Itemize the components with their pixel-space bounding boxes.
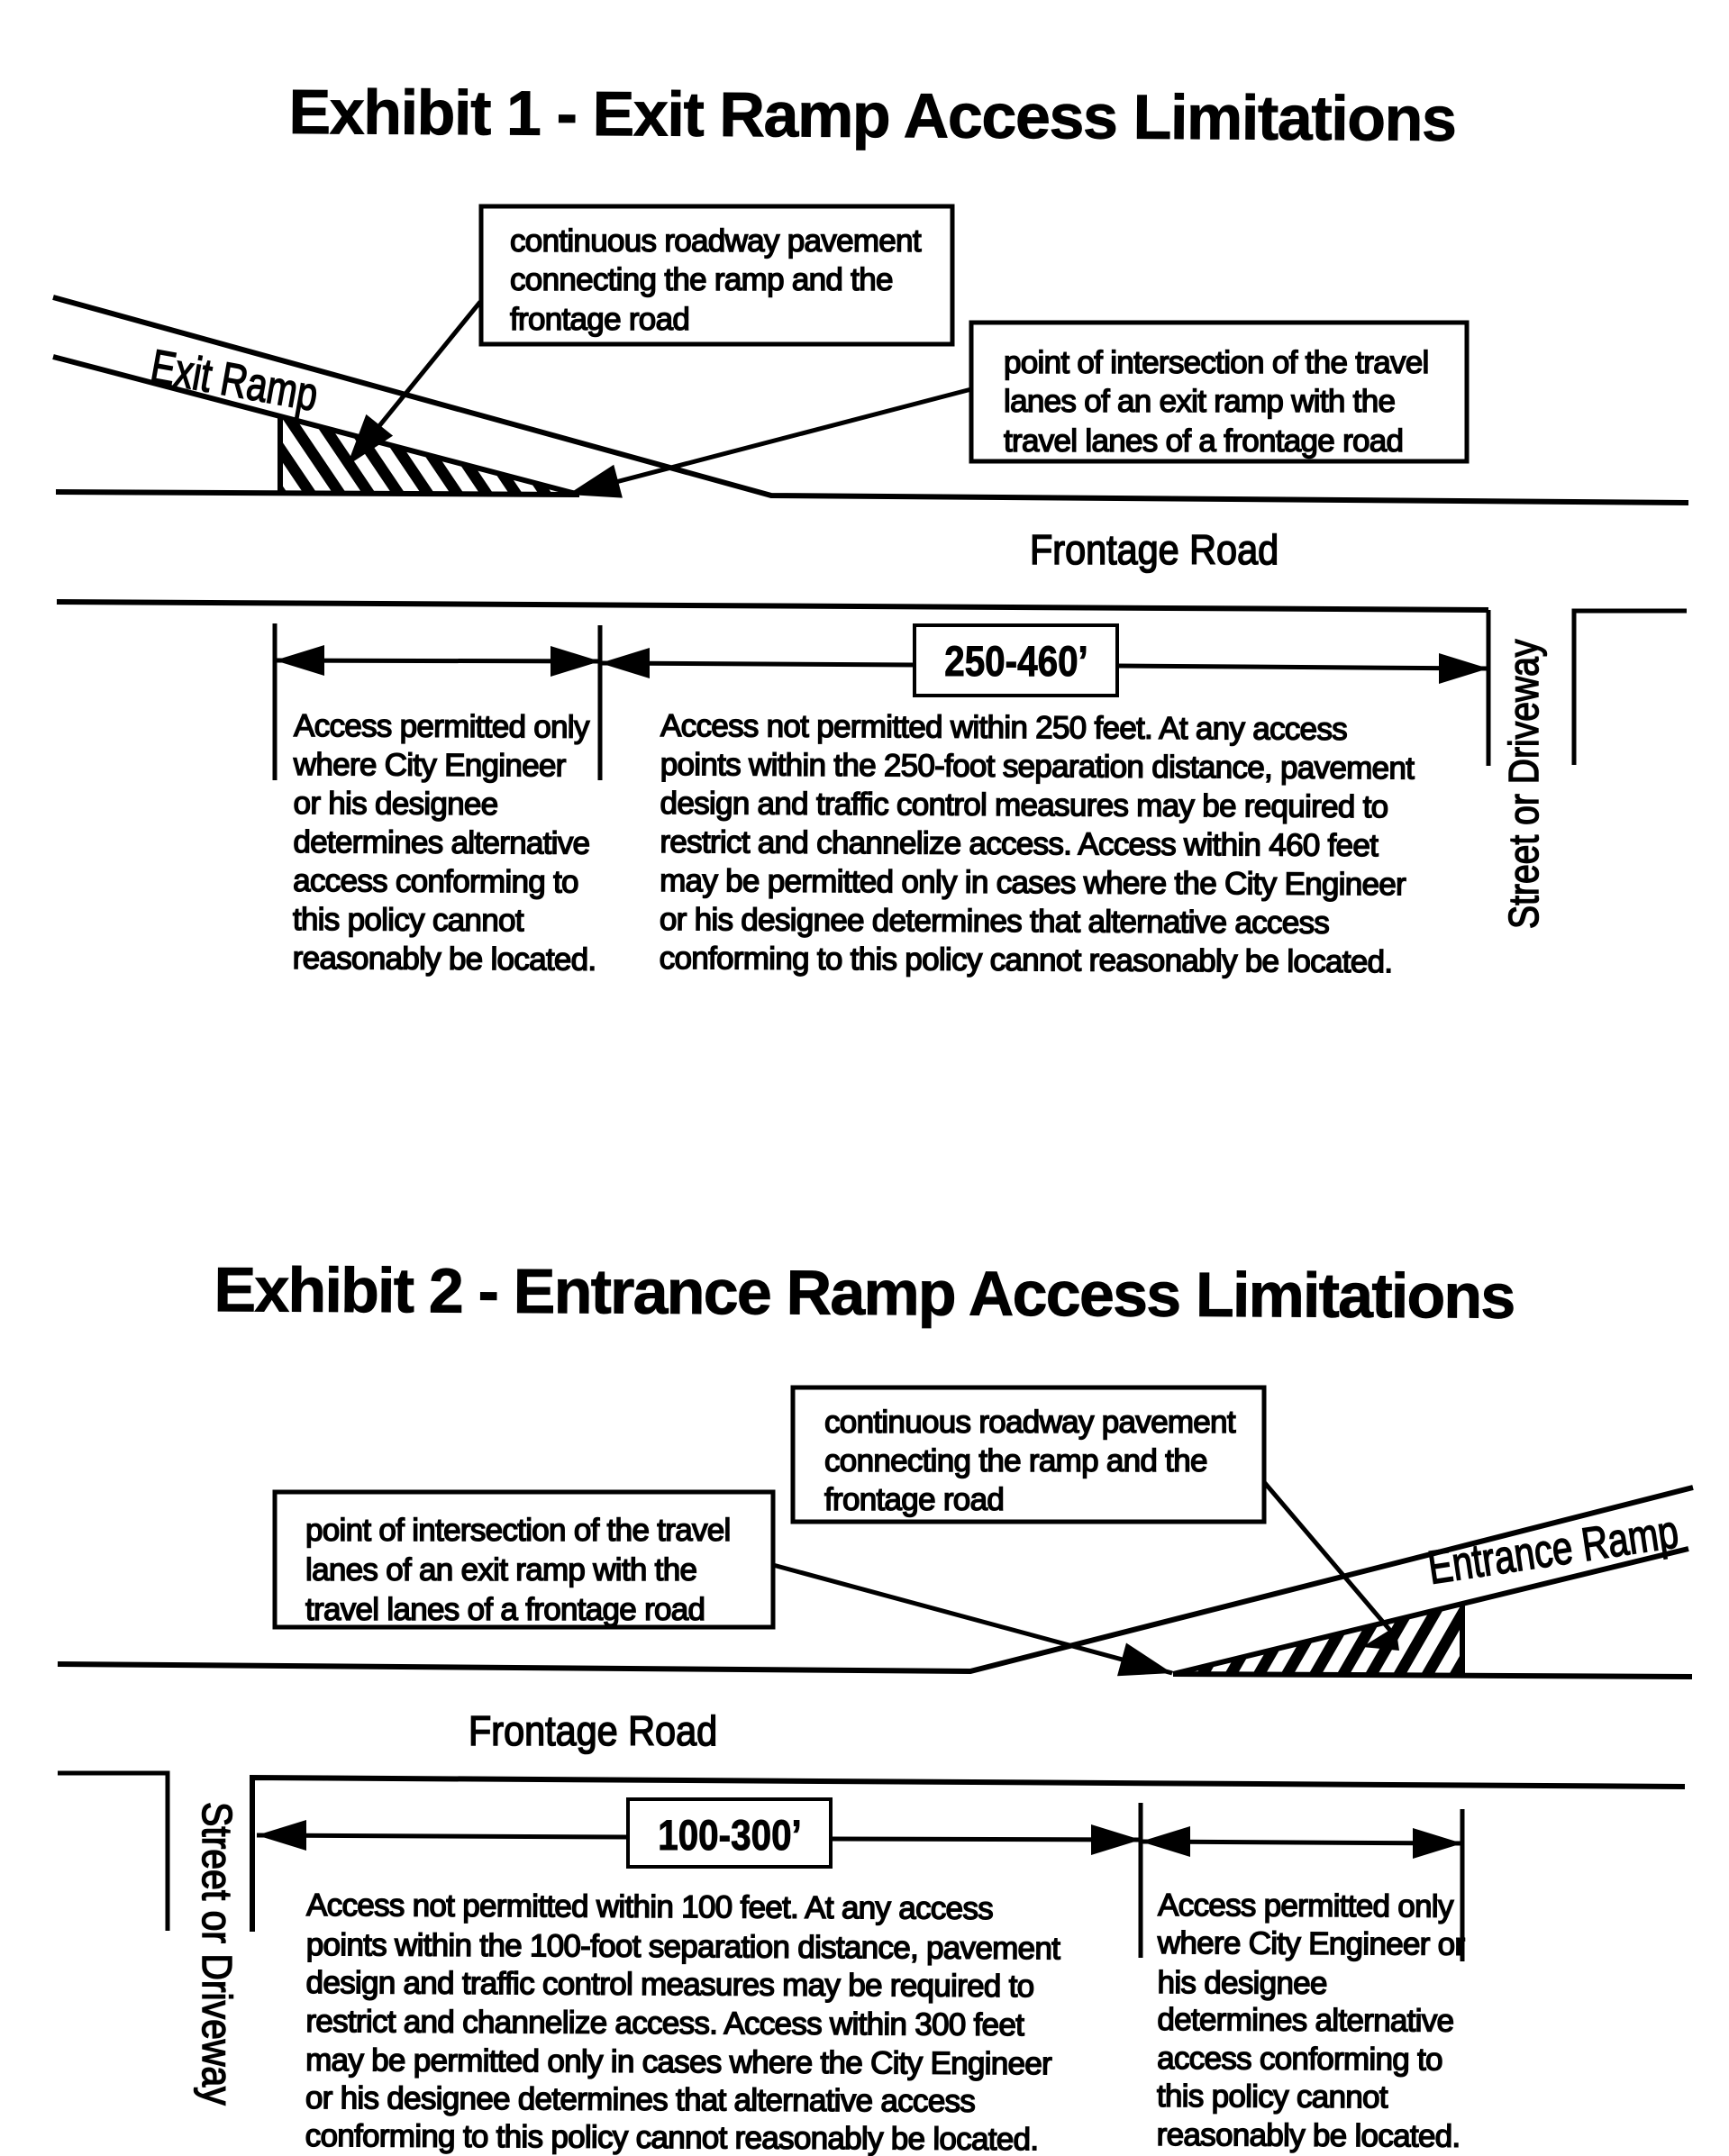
svg-text:access conforming to: access conforming to <box>1157 2041 1442 2078</box>
svg-text:travel lanes of a frontage roa: travel lanes of a frontage road <box>1004 423 1403 459</box>
svg-text:connecting the ramp and the: connecting the ramp and the <box>510 262 893 297</box>
svg-text:lanes of an exit ramp with the: lanes of an exit ramp with the <box>1004 384 1395 419</box>
svg-text:travel lanes of a frontage roa: travel lanes of a frontage road <box>305 1592 705 1627</box>
svg-text:Frontage Road: Frontage Road <box>469 1708 717 1755</box>
svg-text:restrict and channelize access: restrict and channelize access. Access w… <box>660 824 1379 863</box>
svg-text:Frontage Road: Frontage Road <box>1030 527 1279 574</box>
svg-text:where City Engineer: where City Engineer <box>293 747 567 784</box>
svg-text:Exhibit 1 - Exit Ramp Access L: Exhibit 1 - Exit Ramp Access Limitations <box>288 77 1456 154</box>
svg-text:points within the 250-foot sep: points within the 250-foot separation di… <box>660 747 1415 786</box>
svg-text:his designee: his designee <box>1158 1965 1327 2001</box>
svg-text:this policy cannot: this policy cannot <box>293 902 524 938</box>
svg-text:design and traffic control mea: design and traffic control measures may … <box>660 786 1388 824</box>
svg-text:conforming to this policy cann: conforming to this policy cannot reasona… <box>305 2118 1039 2156</box>
svg-text:determines alternative: determines alternative <box>1157 2002 1453 2039</box>
svg-text:Street or Driveway: Street or Driveway <box>193 1802 239 2106</box>
svg-text:or his designee determines tha: or his designee determines that alternat… <box>660 902 1330 941</box>
svg-text:or his designee determines tha: or his designee determines that alternat… <box>305 2080 976 2119</box>
svg-text:conforming to this policy cann: conforming to this policy cannot reasona… <box>660 941 1393 979</box>
svg-text:connecting the ramp and the: connecting the ramp and the <box>824 1443 1207 1478</box>
svg-text:reasonably be located.: reasonably be located. <box>293 941 596 978</box>
svg-text:where City Engineer or: where City Engineer or <box>1157 1925 1466 1962</box>
svg-text:100-300’: 100-300’ <box>658 1812 802 1860</box>
svg-text:point of intersection of the t: point of intersection of the travel <box>305 1513 731 1548</box>
svg-text:frontage road: frontage road <box>824 1482 1004 1517</box>
svg-text:reasonably be located.: reasonably be located. <box>1157 2117 1461 2154</box>
svg-text:may be permitted only in cases: may be permitted only in cases where the… <box>305 2042 1052 2081</box>
svg-text:point of intersection of the t: point of intersection of the travel <box>1004 345 1429 380</box>
svg-text:continuous roadway pavement: continuous roadway pavement <box>824 1405 1236 1440</box>
svg-text:Access not permitted within 25: Access not permitted within 250 feet. At… <box>660 708 1347 747</box>
svg-text:continuous roadway pavement: continuous roadway pavement <box>510 223 922 259</box>
svg-text:or his designee: or his designee <box>294 786 498 822</box>
svg-text:restrict and channelize access: restrict and channelize access. Access w… <box>305 2004 1024 2042</box>
svg-text:lanes of an exit ramp with the: lanes of an exit ramp with the <box>305 1552 696 1587</box>
svg-text:points within the 100-foot sep: points within the 100-foot separation di… <box>306 1927 1061 1966</box>
svg-text:access conforming to: access conforming to <box>293 863 578 900</box>
svg-text:Access not permitted within 10: Access not permitted within 100 feet. At… <box>306 1888 993 1926</box>
svg-text:this policy cannot: this policy cannot <box>1157 2079 1388 2115</box>
svg-text:frontage road: frontage road <box>510 302 689 337</box>
svg-text:Access permitted only: Access permitted only <box>1158 1888 1454 1924</box>
svg-text:Access permitted only: Access permitted only <box>294 708 590 745</box>
svg-text:may be permitted only in cases: may be permitted only in cases where the… <box>660 863 1406 902</box>
svg-text:determines alternative: determines alternative <box>293 824 589 861</box>
svg-text:design and traffic control mea: design and traffic control measures may … <box>306 1965 1034 2004</box>
svg-text:250-460’: 250-460’ <box>944 638 1088 686</box>
svg-text:Exhibit 2 - Entrance Ramp Acce: Exhibit 2 - Entrance Ramp Access Limitat… <box>214 1254 1514 1332</box>
svg-text:Street or Driveway: Street or Driveway <box>1501 639 1548 929</box>
